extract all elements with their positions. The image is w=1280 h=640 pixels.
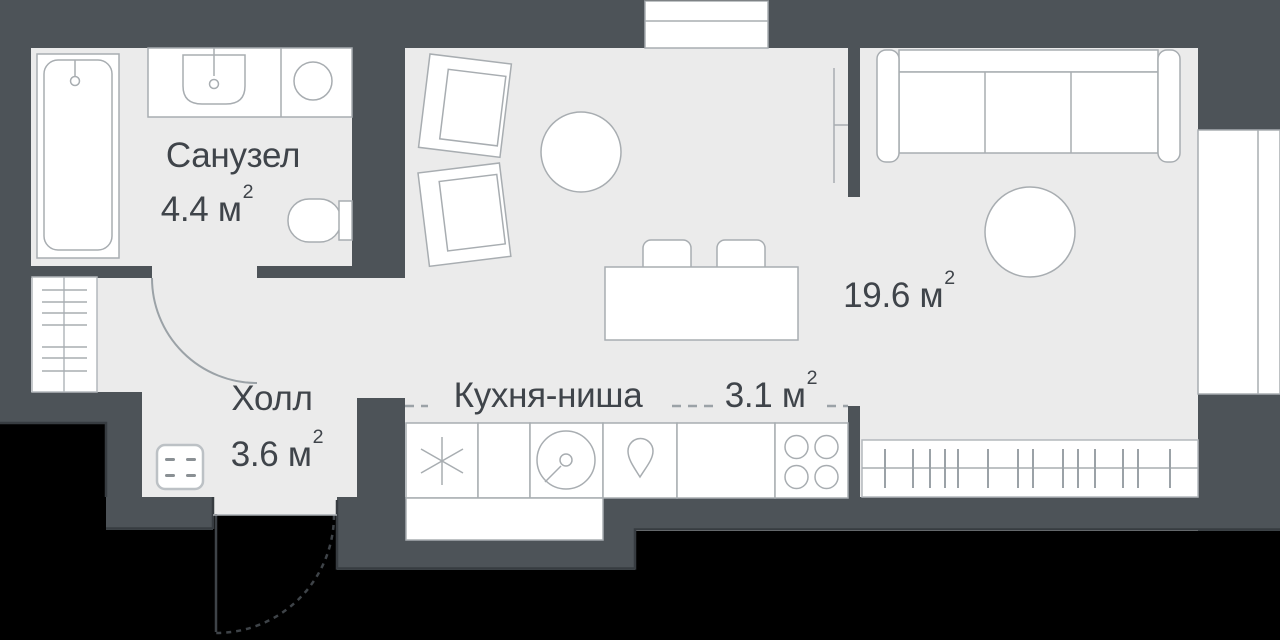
counter-segment	[478, 423, 530, 498]
sofa	[877, 50, 1180, 162]
side-table	[985, 187, 1075, 277]
washbasin	[183, 48, 245, 104]
top-window	[645, 1, 768, 48]
bathtub	[37, 54, 119, 258]
bathroom-area-label: 4.4 м2	[161, 192, 254, 227]
floorplan-svg	[0, 0, 1280, 640]
radiator	[862, 440, 1198, 497]
hall-area-label: 3.6 м2	[231, 437, 324, 472]
entrance-door-swing	[216, 515, 334, 633]
hob	[775, 423, 848, 498]
washer-drum-icon	[537, 431, 595, 489]
floorplan-stage: Санузел 4.4 м2 Холл 3.6 м2 Кухня-ниша 3.…	[0, 0, 1280, 640]
toilet	[288, 199, 352, 242]
armchair	[418, 163, 511, 266]
hall-name-label: Холл	[231, 381, 312, 416]
washbasin-unit	[148, 48, 352, 117]
kitchen-area-label: 3.1 м2	[725, 378, 818, 413]
bathroom-name-label: Санузел	[166, 138, 300, 173]
counter-segment	[677, 423, 775, 498]
coffee-table	[541, 112, 621, 192]
counter-block	[406, 498, 603, 540]
electrical-panel	[157, 445, 203, 489]
kitchen-name-label: Кухня-ниша	[454, 378, 643, 413]
right-window	[1198, 130, 1280, 394]
living-area-label: 19.6 м2	[843, 278, 955, 313]
washing-machine	[294, 62, 332, 100]
vertical-radiator	[32, 277, 97, 392]
dining-table	[605, 267, 798, 340]
armchair	[419, 54, 512, 157]
entrance-door	[213, 514, 337, 633]
